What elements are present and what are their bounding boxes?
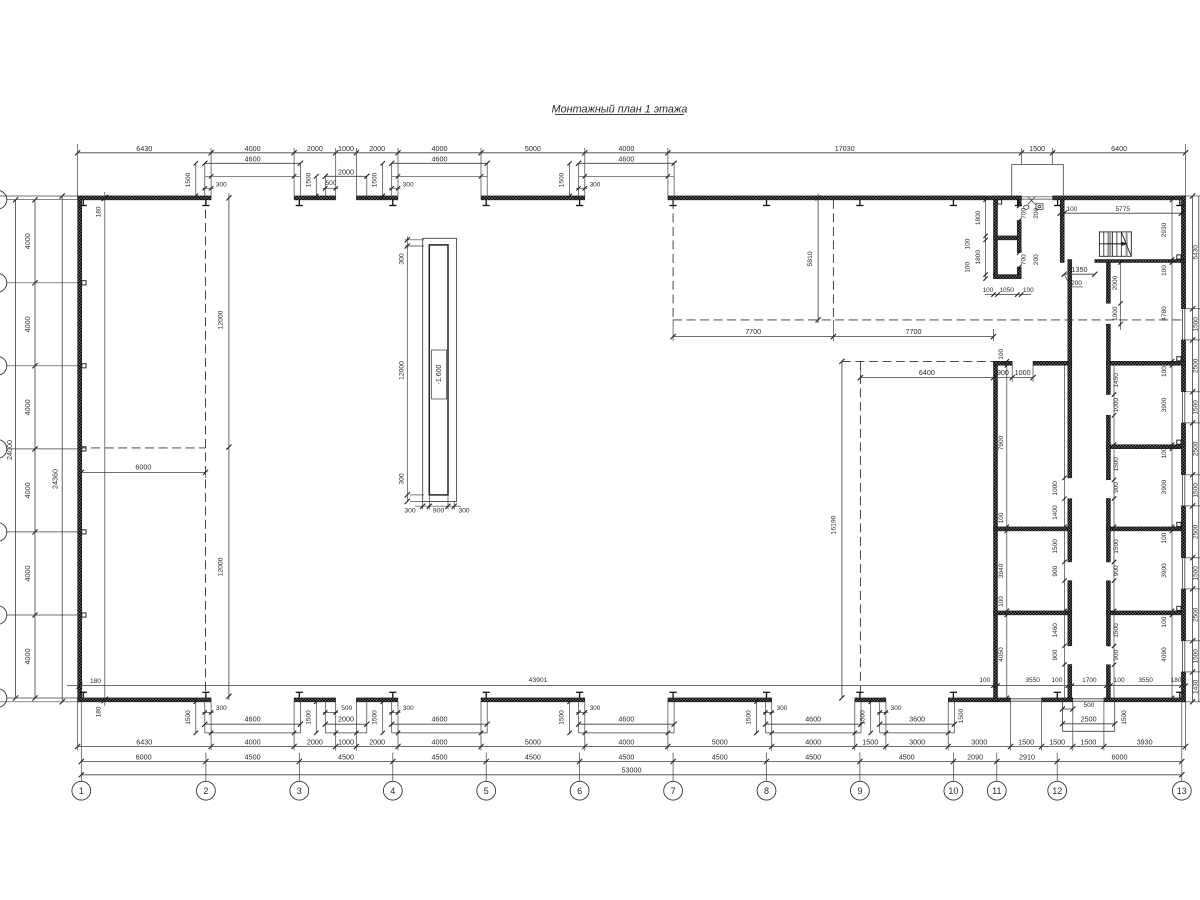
svg-text:1050: 1050 bbox=[999, 287, 1014, 294]
svg-text:2: 2 bbox=[203, 786, 208, 796]
svg-text:100: 100 bbox=[998, 348, 1005, 359]
svg-text:700: 700 bbox=[1021, 254, 1028, 265]
svg-text:43901: 43901 bbox=[529, 677, 548, 684]
svg-text:4500: 4500 bbox=[338, 752, 354, 761]
svg-text:1450: 1450 bbox=[1113, 373, 1120, 388]
svg-text:4600: 4600 bbox=[245, 154, 261, 163]
svg-text:700: 700 bbox=[1021, 207, 1028, 218]
svg-text:100: 100 bbox=[1051, 677, 1062, 684]
svg-text:11: 11 bbox=[992, 786, 1001, 796]
svg-text:6430: 6430 bbox=[136, 737, 152, 746]
svg-text:4500: 4500 bbox=[245, 752, 261, 761]
svg-text:100: 100 bbox=[998, 596, 1005, 607]
svg-text:1500: 1500 bbox=[1018, 737, 1034, 746]
svg-text:1500: 1500 bbox=[372, 172, 379, 187]
svg-text:2000: 2000 bbox=[338, 167, 354, 176]
svg-text:1500: 1500 bbox=[559, 172, 566, 187]
svg-text:5000: 5000 bbox=[712, 737, 728, 746]
svg-text:1700: 1700 bbox=[1082, 677, 1097, 684]
svg-text:16190: 16190 bbox=[831, 515, 838, 534]
svg-text:4: 4 bbox=[390, 786, 395, 796]
svg-text:1500: 1500 bbox=[559, 710, 566, 725]
svg-text:3940: 3940 bbox=[998, 563, 1005, 578]
svg-text:900: 900 bbox=[1113, 482, 1120, 493]
svg-text:300: 300 bbox=[776, 705, 787, 712]
svg-text:4500: 4500 bbox=[618, 752, 634, 761]
svg-text:2000: 2000 bbox=[307, 737, 323, 746]
svg-text:7900: 7900 bbox=[998, 435, 1005, 450]
svg-text:1500: 1500 bbox=[1049, 737, 1065, 746]
svg-text:4600: 4600 bbox=[618, 714, 634, 723]
svg-text:7: 7 bbox=[671, 786, 676, 796]
svg-text:3930: 3930 bbox=[1137, 737, 1153, 746]
svg-text:4780: 4780 bbox=[1161, 306, 1168, 321]
svg-text:17030: 17030 bbox=[835, 144, 855, 153]
svg-text:6400: 6400 bbox=[1111, 144, 1127, 153]
svg-text:6000: 6000 bbox=[1112, 752, 1128, 761]
svg-text:100: 100 bbox=[964, 238, 971, 249]
svg-text:100: 100 bbox=[1161, 265, 1168, 276]
svg-text:7700: 7700 bbox=[906, 327, 922, 336]
svg-text:4600: 4600 bbox=[618, 154, 634, 163]
svg-text:900: 900 bbox=[1113, 565, 1120, 576]
svg-text:200: 200 bbox=[1033, 207, 1040, 218]
svg-text:180: 180 bbox=[90, 678, 101, 685]
svg-text:300: 300 bbox=[399, 473, 406, 485]
svg-text:1800: 1800 bbox=[975, 210, 982, 225]
svg-text:12000: 12000 bbox=[399, 361, 406, 380]
svg-text:180: 180 bbox=[95, 206, 102, 217]
svg-text:1500: 1500 bbox=[958, 708, 965, 723]
svg-text:4600: 4600 bbox=[245, 714, 261, 723]
svg-text:1500: 1500 bbox=[1029, 144, 1045, 153]
svg-text:4050: 4050 bbox=[998, 647, 1005, 662]
svg-text:4000: 4000 bbox=[23, 482, 32, 498]
svg-text:24000: 24000 bbox=[5, 440, 14, 460]
svg-text:4500: 4500 bbox=[805, 752, 821, 761]
svg-text:4000: 4000 bbox=[23, 316, 32, 332]
svg-text:5810: 5810 bbox=[807, 251, 814, 266]
svg-text:5: 5 bbox=[484, 786, 489, 796]
svg-text:2000: 2000 bbox=[307, 144, 323, 153]
svg-text:3900: 3900 bbox=[1161, 397, 1168, 412]
svg-text:100: 100 bbox=[1161, 616, 1168, 627]
svg-text:1800: 1800 bbox=[975, 250, 982, 265]
svg-text:-1.600: -1.600 bbox=[436, 364, 443, 384]
svg-text:2000: 2000 bbox=[369, 144, 385, 153]
svg-text:100: 100 bbox=[1114, 677, 1125, 684]
svg-text:3000: 3000 bbox=[909, 737, 925, 746]
svg-text:900: 900 bbox=[1113, 649, 1120, 660]
svg-text:300: 300 bbox=[404, 508, 416, 515]
svg-text:4000: 4000 bbox=[23, 399, 32, 415]
svg-text:300: 300 bbox=[216, 705, 227, 712]
svg-text:2000: 2000 bbox=[338, 714, 354, 723]
svg-text:3: 3 bbox=[297, 786, 302, 796]
svg-text:12000: 12000 bbox=[217, 557, 224, 576]
svg-text:1500: 1500 bbox=[1080, 737, 1096, 746]
svg-text:500: 500 bbox=[326, 180, 337, 187]
svg-text:5775: 5775 bbox=[1116, 206, 1131, 213]
svg-text:1000: 1000 bbox=[338, 144, 354, 153]
svg-text:2930: 2930 bbox=[1161, 222, 1168, 237]
svg-text:3600: 3600 bbox=[909, 714, 925, 723]
svg-text:1500: 1500 bbox=[305, 710, 312, 725]
svg-text:1460: 1460 bbox=[1052, 623, 1059, 638]
svg-text:24360: 24360 bbox=[50, 469, 59, 489]
svg-text:4600: 4600 bbox=[805, 714, 821, 723]
svg-text:4000: 4000 bbox=[618, 144, 634, 153]
svg-text:2000: 2000 bbox=[369, 737, 385, 746]
svg-text:1000: 1000 bbox=[1015, 368, 1031, 377]
svg-text:100: 100 bbox=[1161, 532, 1168, 543]
svg-text:300: 300 bbox=[590, 182, 601, 189]
svg-text:1500: 1500 bbox=[1121, 710, 1128, 725]
svg-text:12: 12 bbox=[1052, 786, 1062, 796]
svg-text:8: 8 bbox=[764, 786, 769, 796]
svg-text:4000: 4000 bbox=[805, 737, 821, 746]
svg-text:900: 900 bbox=[1052, 649, 1059, 660]
svg-text:1000: 1000 bbox=[1052, 481, 1059, 496]
svg-text:6430: 6430 bbox=[136, 144, 152, 153]
svg-text:4600: 4600 bbox=[432, 154, 448, 163]
svg-text:1500: 1500 bbox=[185, 172, 192, 187]
svg-text:1400: 1400 bbox=[1052, 505, 1059, 520]
svg-text:3000: 3000 bbox=[971, 737, 987, 746]
svg-text:100: 100 bbox=[983, 287, 994, 294]
svg-text:9: 9 bbox=[857, 786, 862, 796]
svg-text:100: 100 bbox=[998, 512, 1005, 523]
svg-text:10: 10 bbox=[948, 786, 958, 796]
svg-text:1000: 1000 bbox=[1112, 306, 1119, 321]
svg-text:4000: 4000 bbox=[23, 649, 32, 665]
svg-text:1500: 1500 bbox=[1113, 623, 1120, 638]
svg-text:1500: 1500 bbox=[1052, 539, 1059, 554]
svg-text:6000: 6000 bbox=[135, 462, 151, 471]
svg-text:4000: 4000 bbox=[23, 233, 32, 249]
svg-text:53000: 53000 bbox=[622, 765, 642, 774]
svg-text:200: 200 bbox=[1071, 280, 1082, 287]
svg-text:3900: 3900 bbox=[1161, 563, 1168, 578]
svg-text:12000: 12000 bbox=[217, 310, 224, 329]
svg-text:5000: 5000 bbox=[525, 144, 541, 153]
svg-text:300: 300 bbox=[458, 508, 470, 515]
svg-text:300: 300 bbox=[891, 705, 902, 712]
svg-text:6400: 6400 bbox=[919, 368, 935, 377]
svg-text:180: 180 bbox=[1171, 677, 1182, 684]
svg-text:1000: 1000 bbox=[338, 737, 354, 746]
svg-text:4090: 4090 bbox=[1161, 647, 1168, 662]
svg-text:1500: 1500 bbox=[1113, 539, 1120, 554]
svg-text:500: 500 bbox=[1084, 702, 1095, 709]
svg-text:3900: 3900 bbox=[1161, 479, 1168, 494]
svg-text:6000: 6000 bbox=[136, 752, 152, 761]
svg-text:1: 1 bbox=[79, 786, 84, 796]
svg-text:300: 300 bbox=[590, 705, 601, 712]
svg-text:100: 100 bbox=[1161, 366, 1168, 377]
svg-text:4500: 4500 bbox=[525, 752, 541, 761]
svg-text:900: 900 bbox=[433, 508, 445, 515]
svg-text:500: 500 bbox=[341, 705, 352, 712]
svg-text:2000: 2000 bbox=[1112, 275, 1119, 290]
svg-text:4000: 4000 bbox=[23, 566, 32, 582]
svg-text:1500: 1500 bbox=[305, 172, 312, 187]
svg-text:6: 6 bbox=[577, 786, 582, 796]
svg-text:300: 300 bbox=[403, 182, 414, 189]
svg-text:300: 300 bbox=[216, 182, 227, 189]
svg-text:180: 180 bbox=[95, 706, 102, 717]
svg-text:100: 100 bbox=[964, 261, 971, 272]
svg-text:2910: 2910 bbox=[1019, 752, 1035, 761]
svg-text:4000: 4000 bbox=[432, 737, 448, 746]
svg-text:4000: 4000 bbox=[618, 737, 634, 746]
svg-text:1350: 1350 bbox=[1072, 265, 1088, 274]
svg-text:100: 100 bbox=[1161, 447, 1168, 458]
svg-text:3550: 3550 bbox=[1138, 677, 1153, 684]
svg-text:300: 300 bbox=[399, 253, 406, 265]
svg-text:13: 13 bbox=[1177, 786, 1187, 796]
svg-text:2500: 2500 bbox=[1081, 714, 1097, 723]
svg-text:4000: 4000 bbox=[432, 144, 448, 153]
svg-text:1500: 1500 bbox=[372, 710, 379, 725]
svg-text:4000: 4000 bbox=[245, 144, 261, 153]
svg-text:4500: 4500 bbox=[899, 752, 915, 761]
svg-text:4500: 4500 bbox=[432, 752, 448, 761]
svg-text:900: 900 bbox=[1052, 565, 1059, 576]
svg-text:100: 100 bbox=[1066, 206, 1077, 213]
svg-text:1500: 1500 bbox=[862, 737, 878, 746]
svg-text:100: 100 bbox=[1023, 287, 1034, 294]
svg-text:4000: 4000 bbox=[245, 737, 261, 746]
svg-text:Монтажный план 1 этажа: Монтажный план 1 этажа bbox=[552, 103, 688, 115]
svg-text:7700: 7700 bbox=[745, 327, 761, 336]
svg-text:5000: 5000 bbox=[525, 737, 541, 746]
svg-text:1500: 1500 bbox=[185, 710, 192, 725]
svg-text:300: 300 bbox=[403, 705, 414, 712]
svg-text:1500: 1500 bbox=[860, 710, 867, 725]
svg-text:1000: 1000 bbox=[1113, 398, 1120, 413]
svg-text:4600: 4600 bbox=[432, 714, 448, 723]
svg-text:1500: 1500 bbox=[746, 710, 753, 725]
svg-text:1500: 1500 bbox=[1113, 457, 1120, 472]
svg-text:200: 200 bbox=[1033, 254, 1040, 265]
svg-text:4500: 4500 bbox=[712, 752, 728, 761]
svg-text:2090: 2090 bbox=[967, 752, 983, 761]
svg-text:3550: 3550 bbox=[1025, 677, 1040, 684]
svg-text:100: 100 bbox=[979, 677, 990, 684]
